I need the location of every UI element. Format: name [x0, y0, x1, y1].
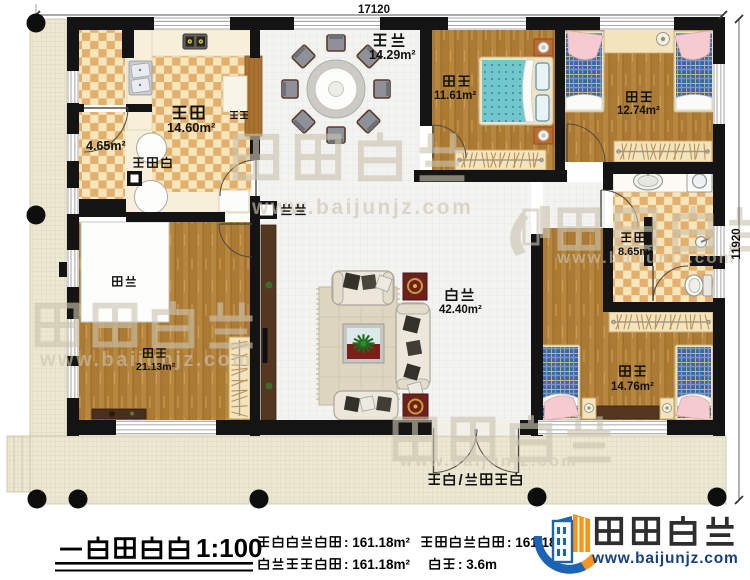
- svg-text:11.61m²: 11.61m²: [434, 90, 476, 102]
- svg-text:www.baijunjz.com: www.baijunjz.com: [591, 550, 739, 567]
- svg-text:: 161.18m²: : 161.18m²: [344, 557, 411, 572]
- svg-text:17120: 17120: [358, 4, 390, 16]
- svg-text:: 3.6m: : 3.6m: [458, 557, 497, 572]
- svg-text:12.74m²: 12.74m²: [617, 105, 660, 117]
- svg-text:11920: 11920: [731, 228, 743, 259]
- svg-text:www.baijunjz.com: www.baijunjz.com: [399, 453, 578, 470]
- svg-text:42.40m²: 42.40m²: [439, 304, 482, 316]
- svg-text:21.13m²: 21.13m²: [136, 361, 176, 373]
- svg-text:8.65m²: 8.65m²: [618, 246, 653, 258]
- svg-text:: 161.18m²: : 161.18m²: [344, 535, 411, 550]
- svg-text:14.29m²: 14.29m²: [369, 48, 416, 62]
- svg-text:4.65m²: 4.65m²: [86, 139, 126, 153]
- svg-text:14.60m²: 14.60m²: [167, 120, 216, 135]
- svg-text:1:100: 1:100: [196, 533, 263, 563]
- svg-text:14.76m²: 14.76m²: [611, 381, 654, 393]
